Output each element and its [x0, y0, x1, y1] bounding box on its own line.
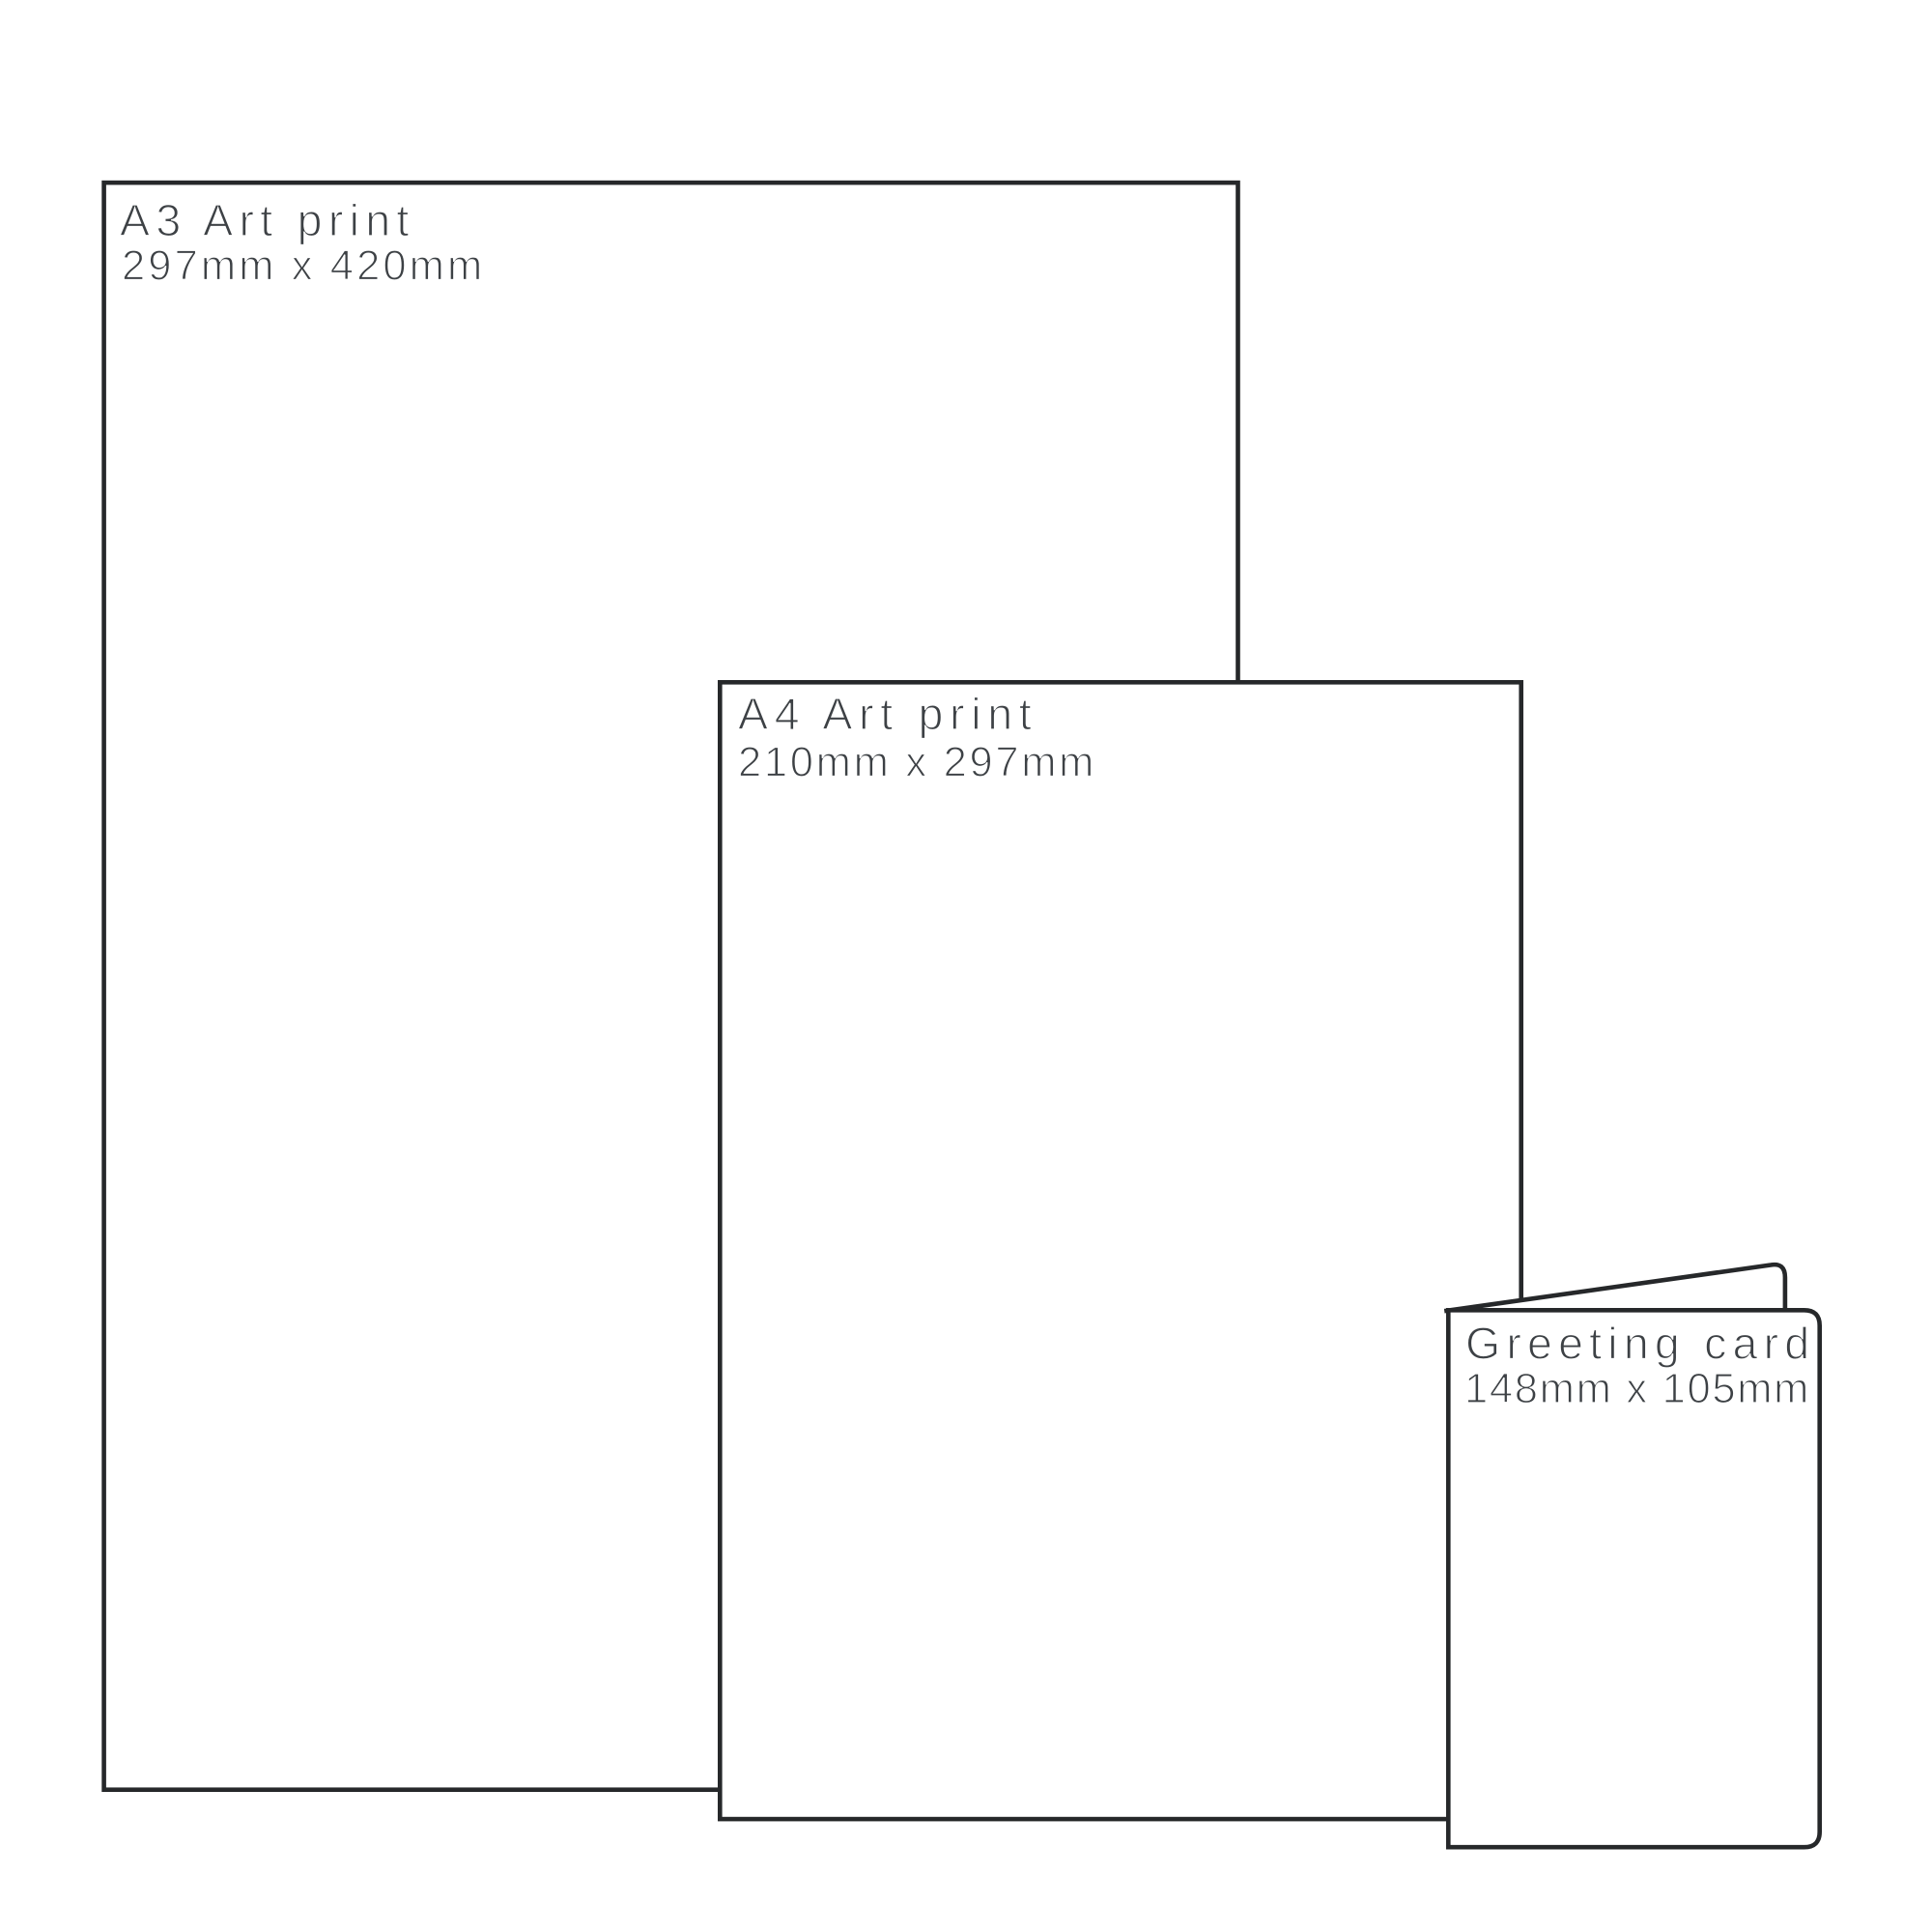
svg-text:148mm x 105mm: 148mm x 105mm: [1464, 1366, 1810, 1412]
svg-text:A3 Art print: A3 Art print: [120, 195, 415, 245]
svg-text:Greeting card: Greeting card: [1465, 1319, 1815, 1369]
svg-text:A4 Art print: A4 Art print: [738, 689, 1037, 739]
svg-text:210mm x 297mm: 210mm x 297mm: [738, 740, 1096, 786]
svg-text:297mm x 420mm: 297mm x 420mm: [122, 243, 485, 290]
